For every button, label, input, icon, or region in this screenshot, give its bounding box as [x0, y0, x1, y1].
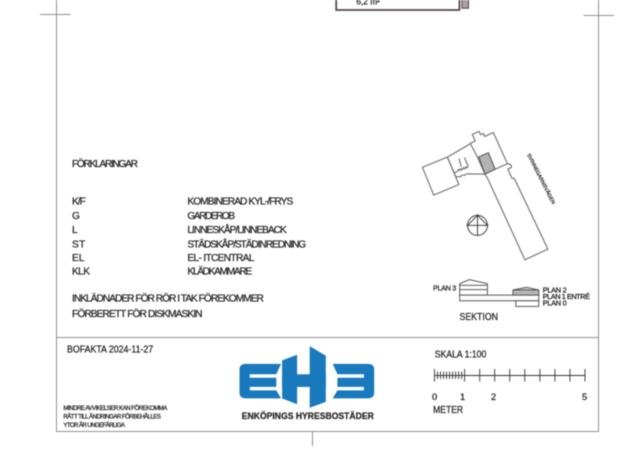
svg-text:STÄDSKÅP/STÄDINREDNING: STÄDSKÅP/STÄDINREDNING — [187, 238, 306, 251]
svg-text:BOFAKTA 2024-11-27: BOFAKTA 2024-11-27 — [67, 345, 154, 356]
svg-text:ENKÖPINGS HYRESBOSTÄDER: ENKÖPINGS HYRESBOSTÄDER — [242, 410, 374, 421]
svg-text:MINDRE AVVIKELSER KAN FÖREKOMM: MINDRE AVVIKELSER KAN FÖREKOMMA — [63, 405, 168, 412]
svg-text:INKLÄDNADER FÖR RÖR I TAK FÖRE: INKLÄDNADER FÖR RÖR I TAK FÖREKOMMER — [72, 292, 264, 304]
svg-text:RÄTT TILL ÄNDRINGAR FÖRBEHÅLLE: RÄTT TILL ÄNDRINGAR FÖRBEHÅLLES — [63, 414, 160, 421]
svg-text:5: 5 — [582, 392, 587, 402]
svg-text:SEKTION: SEKTION — [460, 312, 499, 323]
svg-text:2: 2 — [491, 392, 496, 402]
svg-text:G: G — [72, 211, 80, 222]
svg-text:LINNESKÅP/LINNEBACK: LINNESKÅP/LINNEBACK — [187, 223, 287, 236]
svg-text:1: 1 — [460, 392, 465, 402]
svg-text:KLÄDKAMMARE: KLÄDKAMMARE — [187, 265, 252, 277]
svg-text:0: 0 — [432, 392, 437, 402]
svg-text:METER: METER — [433, 405, 463, 416]
svg-text:PLAN 3: PLAN 3 — [433, 283, 456, 292]
svg-text:PLAN 0: PLAN 0 — [543, 299, 567, 308]
svg-text:6,2 m²: 6,2 m² — [356, 0, 380, 8]
svg-text:EL- ITCENTRAL: EL- ITCENTRAL — [187, 253, 254, 264]
svg-text:YTOR ÄR UNGEFÄRLIGA: YTOR ÄR UNGEFÄRLIGA — [63, 422, 126, 429]
svg-text:SKALA 1:100: SKALA 1:100 — [435, 350, 487, 361]
svg-text:K/F: K/F — [72, 196, 86, 207]
svg-text:FÖRKLARINGAR: FÖRKLARINGAR — [72, 158, 138, 170]
svg-text:ST: ST — [72, 240, 85, 251]
svg-text:GARDEROB: GARDEROB — [187, 211, 235, 222]
svg-text:EL: EL — [72, 253, 85, 264]
svg-text:KLK: KLK — [72, 266, 90, 277]
svg-text:FÖRBERETT FÖR DISKMASKIN: FÖRBERETT FÖR DISKMASKIN — [72, 308, 203, 320]
svg-text:KOMBINERAD KYL-/FRYS: KOMBINERAD KYL-/FRYS — [187, 196, 293, 207]
svg-text:L: L — [72, 225, 78, 236]
